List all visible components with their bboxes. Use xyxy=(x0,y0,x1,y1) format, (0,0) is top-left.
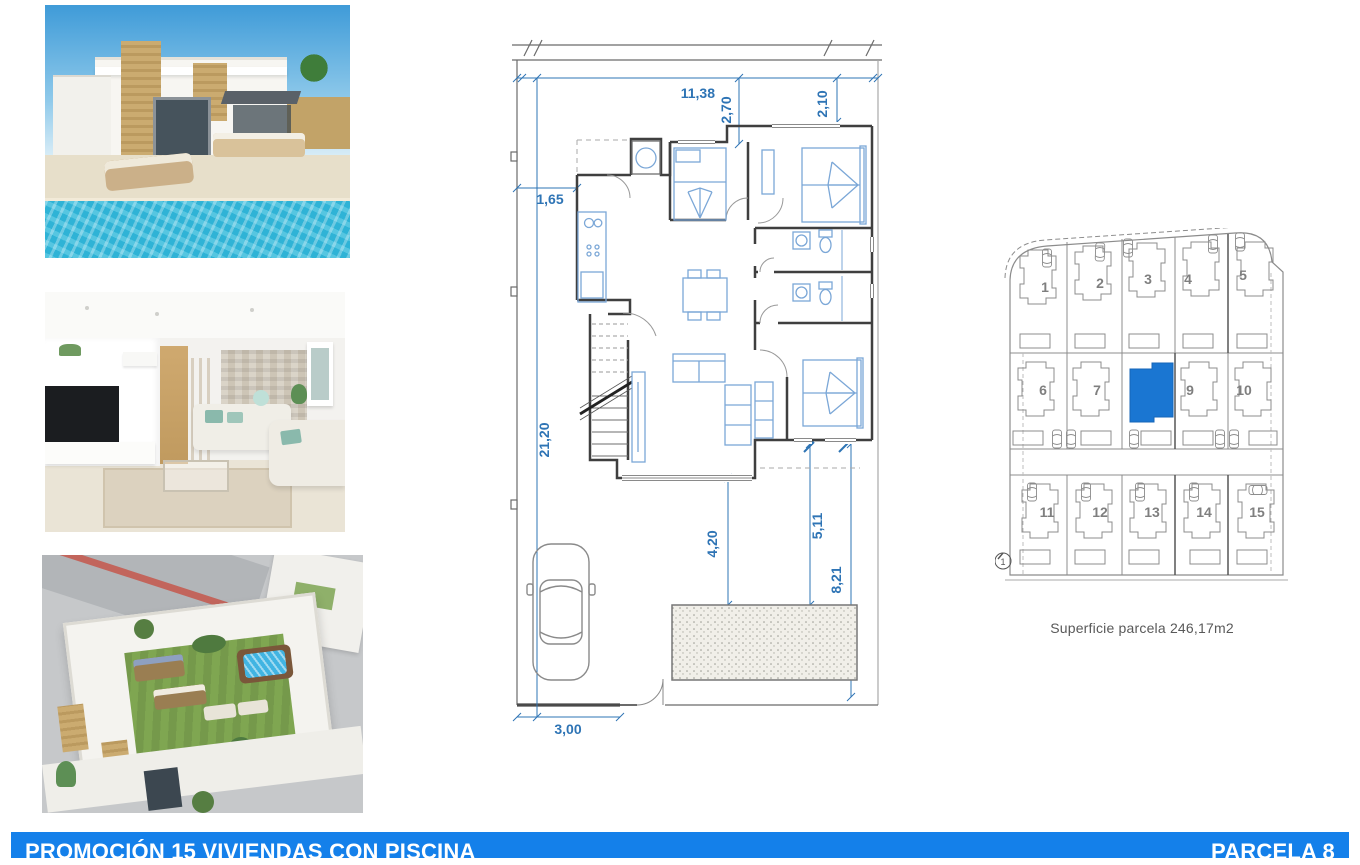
parcel-label-2: 2 xyxy=(1096,275,1104,291)
dim-window-to-pool: 5,11 xyxy=(809,513,825,540)
dim-left-inset: 1,65 xyxy=(536,191,563,207)
parcel-label-13: 13 xyxy=(1144,504,1160,520)
shelf-plant xyxy=(59,344,81,356)
wood-panel-door xyxy=(160,346,188,464)
footer-parcel: PARCELA 8 xyxy=(1211,839,1335,858)
plant xyxy=(291,384,307,404)
plant xyxy=(56,761,76,787)
overhang-dashed xyxy=(577,140,860,468)
ceiling-spotlight xyxy=(155,312,159,316)
sofa-right xyxy=(269,420,345,486)
staircase-block xyxy=(53,75,111,159)
door-arcs xyxy=(607,175,787,377)
parcel-area-caption: Superficie parcela 246,17m2 xyxy=(1012,620,1272,636)
pool-edge xyxy=(45,198,350,201)
floor-plan: 11,38 2,70 2,10 1,65 21,20 4,20 5,11 8,2… xyxy=(510,32,885,747)
dim-top-inset-a: 2,70 xyxy=(718,96,734,123)
dim-gate-width: 3,00 xyxy=(554,721,581,737)
stairs xyxy=(580,324,632,456)
table-lamp xyxy=(253,390,269,406)
furniture xyxy=(578,141,866,462)
pool xyxy=(672,605,857,680)
compass-label: 1 xyxy=(1000,557,1005,567)
compass: 1 xyxy=(995,553,1011,569)
site-plan: 1 2 3 4 5 6 7 9 10 11 12 13 14 15 1 xyxy=(995,228,1295,608)
awning xyxy=(221,91,301,104)
photo-villa-exterior-with-pool xyxy=(45,5,350,258)
dim-porch-to-pool: 4,20 xyxy=(704,530,720,557)
palm-tree xyxy=(297,53,331,83)
gate-door xyxy=(637,679,663,705)
dim-window-to-boundary: 8,21 xyxy=(828,566,844,593)
dim-plot-depth: 21,20 xyxy=(536,422,552,457)
tree-top xyxy=(134,619,154,639)
outdoor-sofa xyxy=(213,133,305,157)
parcel-label-5: 5 xyxy=(1239,267,1247,283)
parcel-label-10: 10 xyxy=(1236,382,1252,398)
plant xyxy=(192,791,214,813)
parcel-label-14: 14 xyxy=(1196,504,1212,520)
parcel-label-9: 9 xyxy=(1186,382,1194,398)
photo-living-room-interior xyxy=(45,292,345,532)
terrace-floor xyxy=(45,155,350,203)
cushion-teal xyxy=(280,429,302,446)
tv-cabinet xyxy=(45,442,155,464)
footer-title: PROMOCIÓN 15 VIVIENDAS CON PISCINA xyxy=(25,839,476,858)
cushion-teal xyxy=(227,412,243,423)
facade-window xyxy=(144,767,183,811)
parcel-label-3: 3 xyxy=(1144,271,1152,287)
jacuzzi-water xyxy=(243,650,288,679)
wall-art-print xyxy=(311,348,329,400)
parcel-label-15: 15 xyxy=(1249,504,1265,520)
footer-bar: PROMOCIÓN 15 VIVIENDAS CON PISCINA PARCE… xyxy=(11,832,1349,858)
dim-top-inset-b: 2,10 xyxy=(814,90,830,117)
wall-shelf xyxy=(123,352,157,366)
glass-door xyxy=(153,97,211,161)
coffee-table xyxy=(163,460,229,492)
parcel-label-7: 7 xyxy=(1093,382,1101,398)
highlighted-parcel-8 xyxy=(1130,363,1173,422)
ceiling-spotlight xyxy=(85,306,89,310)
ceiling xyxy=(45,292,345,338)
parcel-label-4: 4 xyxy=(1184,271,1192,287)
stone-pillar xyxy=(57,704,88,753)
ceiling-spotlight xyxy=(250,308,254,312)
parcel-label-11: 11 xyxy=(1040,504,1055,520)
pool-ripples xyxy=(45,201,350,258)
parcel-label-1: 1 xyxy=(1041,279,1049,295)
dim-top-width: 11,38 xyxy=(681,85,715,101)
parcel-label-6: 6 xyxy=(1039,382,1047,398)
parcel-label-12: 12 xyxy=(1092,504,1108,520)
brochure-page: { "photos": [ {"name": "villa-exterior-w… xyxy=(0,0,1360,850)
tv-screen xyxy=(45,386,119,442)
photo-rooftop-solarium-aerial xyxy=(42,555,363,813)
cushion-teal xyxy=(205,410,223,423)
